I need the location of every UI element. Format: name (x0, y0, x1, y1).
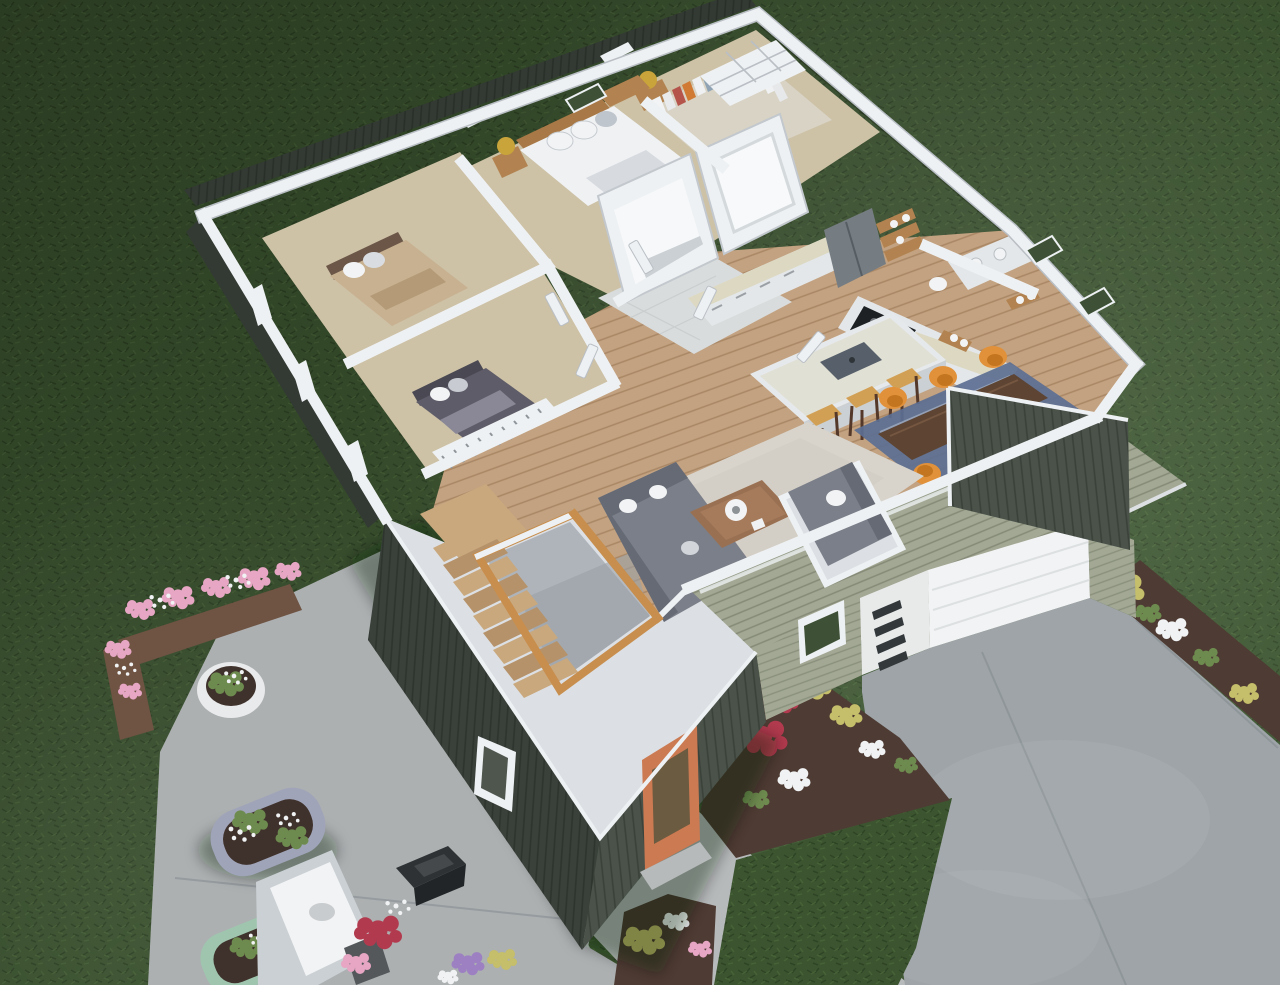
floorplan-render (0, 0, 1280, 985)
toilet (929, 277, 947, 291)
lamp-gold-left (497, 137, 515, 155)
scene-canvas (0, 0, 1280, 985)
